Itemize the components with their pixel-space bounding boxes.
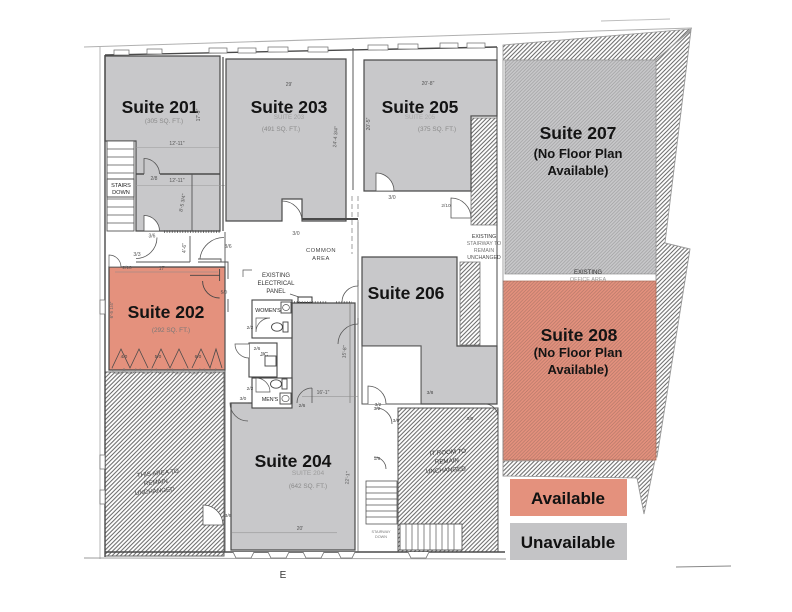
svg-text:20'-5": 20'-5"	[366, 117, 372, 130]
svg-text:4'-6": 4'-6"	[182, 243, 188, 253]
svg-text:12'-11": 12'-11"	[169, 178, 184, 184]
svg-text:2/2: 2/2	[247, 386, 254, 392]
svg-text:3/8: 3/8	[427, 390, 434, 396]
svg-text:3/0: 3/0	[292, 231, 299, 237]
svg-text:(292 SQ. FT.): (292 SQ. FT.)	[152, 327, 190, 334]
svg-text:12'-11": 12'-11"	[169, 141, 184, 147]
svg-text:EXISTING: EXISTING	[574, 270, 602, 276]
svg-text:(375 SQ. FT.): (375 SQ. FT.)	[418, 126, 456, 133]
svg-text:17'-9": 17'-9"	[196, 108, 202, 121]
svg-text:16'-1": 16'-1"	[317, 390, 330, 396]
svg-text:DOWN: DOWN	[112, 190, 130, 196]
svg-text:Suite 207: Suite 207	[540, 123, 617, 143]
svg-text:17': 17'	[159, 266, 166, 272]
svg-text:(No Floor Plan: (No Floor Plan	[534, 146, 623, 161]
svg-text:Available: Available	[531, 489, 605, 508]
svg-text:MEN'S: MEN'S	[262, 397, 279, 403]
svg-text:(No Floor Plan: (No Floor Plan	[534, 345, 623, 360]
svg-text:6'-5 1/4": 6'-5 1/4"	[109, 301, 114, 318]
svg-text:2/10: 2/10	[441, 203, 451, 209]
svg-text:3/0: 3/0	[388, 195, 395, 201]
svg-text:(305 SQ. FT.): (305 SQ. FT.)	[145, 118, 183, 125]
svg-text:3/6: 3/6	[149, 234, 156, 240]
svg-text:STAIRWAY: STAIRWAY	[371, 530, 391, 534]
svg-text:3/0: 3/0	[393, 418, 400, 424]
svg-text:3/0: 3/0	[467, 416, 474, 422]
svg-text:6/0: 6/0	[195, 354, 202, 360]
svg-text:2/2: 2/2	[247, 325, 254, 331]
svg-text:STAIRS: STAIRS	[111, 183, 131, 189]
svg-text:(491 SQ. FT.): (491 SQ. FT.)	[262, 126, 300, 133]
svg-text:DOWN: DOWN	[375, 535, 387, 539]
svg-text:Suite 206: Suite 206	[368, 283, 445, 303]
svg-text:EXISTING: EXISTING	[262, 273, 290, 279]
svg-text:REMAIN: REMAIN	[474, 248, 494, 254]
svg-text:2/6: 2/6	[299, 403, 306, 409]
svg-text:Available): Available)	[548, 163, 609, 178]
svg-text:22'-1": 22'-1"	[344, 471, 351, 484]
svg-text:Suite 208: Suite 208	[541, 325, 618, 345]
svg-text:3/6: 3/6	[225, 513, 232, 519]
svg-text:29': 29'	[286, 82, 293, 88]
svg-text:20'-8": 20'-8"	[422, 81, 435, 87]
svg-text:(642 SQ. FT.): (642 SQ. FT.)	[289, 483, 327, 490]
svg-text:4/0: 4/0	[121, 354, 128, 360]
svg-text:SUITE 204: SUITE 204	[292, 470, 325, 477]
svg-text:3/6: 3/6	[224, 244, 231, 250]
svg-text:Suite 204: Suite 204	[255, 451, 332, 471]
svg-text:COMMON: COMMON	[306, 248, 336, 254]
svg-text:WOMEN'S: WOMEN'S	[255, 308, 281, 314]
svg-text:AREA: AREA	[312, 256, 330, 262]
svg-text:STAIRWAY TO: STAIRWAY TO	[467, 241, 501, 247]
svg-text:EXISTING: EXISTING	[472, 234, 496, 240]
svg-text:15'-8": 15'-8"	[341, 345, 348, 358]
svg-text:SUITE 203: SUITE 203	[274, 114, 305, 121]
svg-text:3/0: 3/0	[240, 396, 247, 402]
svg-text:2/6: 2/6	[254, 346, 261, 352]
svg-text:Suite 201: Suite 201	[122, 97, 199, 117]
svg-text:E: E	[280, 570, 287, 581]
svg-text:3/3: 3/3	[133, 252, 140, 258]
svg-text:UNCHANGED: UNCHANGED	[467, 255, 501, 261]
svg-text:1/8: 1/8	[374, 456, 381, 462]
svg-text:3/2: 3/2	[375, 402, 382, 408]
svg-text:5/0: 5/0	[155, 354, 162, 360]
svg-text:2/8: 2/8	[151, 176, 158, 182]
svg-text:Available): Available)	[548, 362, 609, 377]
svg-text:Unavailable: Unavailable	[521, 533, 616, 552]
svg-text:SUITE 205: SUITE 205	[405, 114, 436, 121]
svg-text:5/0: 5/0	[221, 290, 228, 296]
svg-text:Suite 202: Suite 202	[128, 302, 205, 322]
svg-text:20': 20'	[297, 526, 304, 532]
svg-text:PANEL: PANEL	[266, 289, 286, 295]
svg-text:2/10: 2/10	[122, 265, 132, 271]
svg-text:ELECTRICAL: ELECTRICAL	[257, 281, 295, 287]
